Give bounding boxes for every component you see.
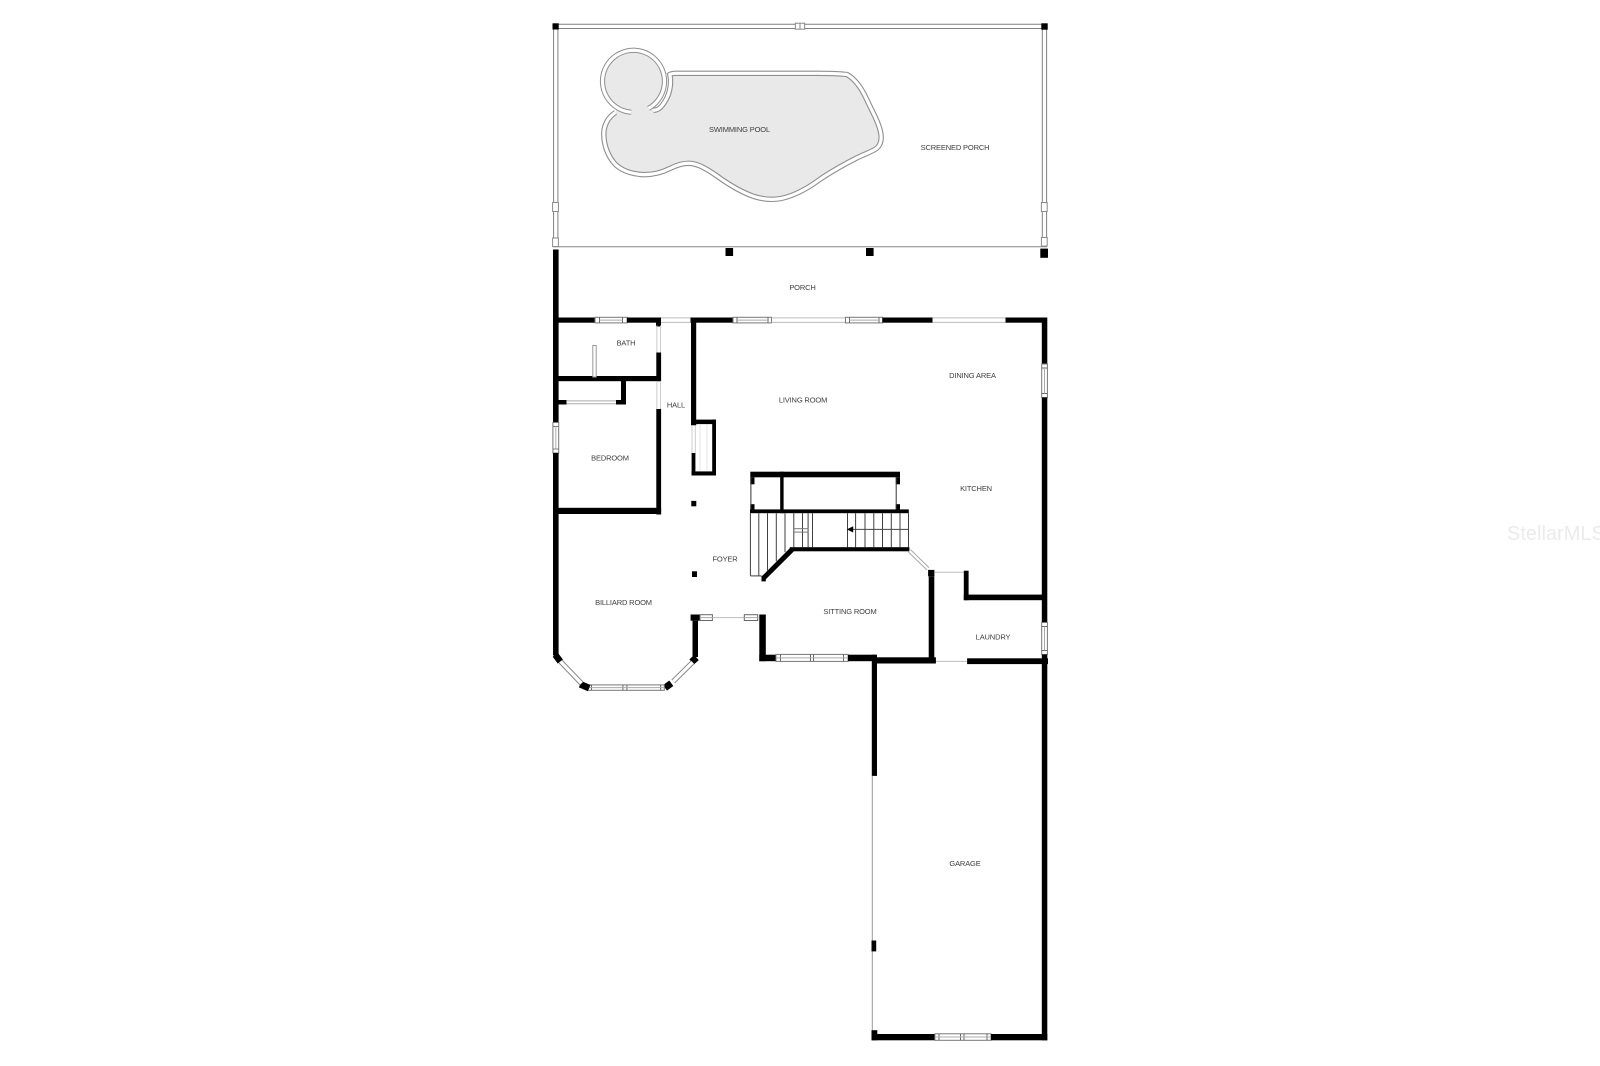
svg-text:SWIMMING POOL: SWIMMING POOL [709,125,770,134]
svg-text:SITTING ROOM: SITTING ROOM [823,607,876,616]
svg-text:BILLIARD ROOM: BILLIARD ROOM [595,598,652,607]
svg-text:SCREENED PORCH: SCREENED PORCH [921,143,990,152]
svg-text:FOYER: FOYER [712,554,738,563]
svg-text:BATH: BATH [617,338,636,347]
svg-text:LIVING ROOM: LIVING ROOM [779,395,827,404]
svg-text:PORCH: PORCH [789,283,815,292]
svg-text:BEDROOM: BEDROOM [591,453,629,462]
svg-text:KITCHEN: KITCHEN [960,484,992,493]
svg-text:StellarMLS: StellarMLS [1507,523,1600,545]
svg-text:DINING AREA: DINING AREA [949,371,996,380]
svg-text:GARAGE: GARAGE [949,859,980,868]
svg-text:HALL: HALL [667,400,685,409]
svg-text:LAUNDRY: LAUNDRY [976,632,1011,641]
